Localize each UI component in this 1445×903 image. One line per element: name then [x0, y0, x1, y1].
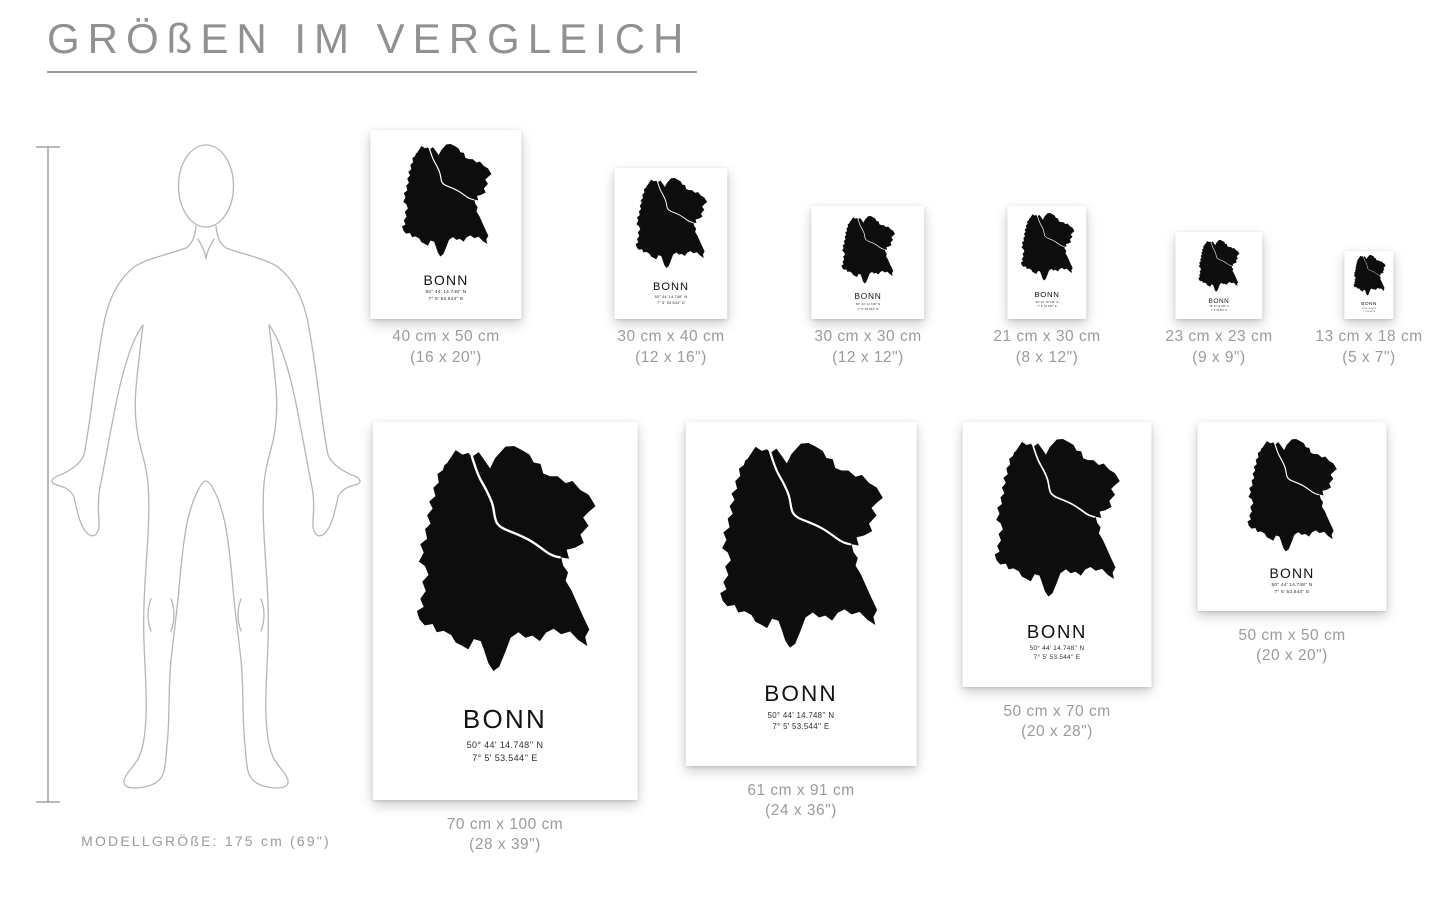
poster-coordinate-east: 7° 5' 53.544'' E [768, 721, 835, 732]
page-title: GRÖßEN IM VERGLEICH [47, 16, 697, 73]
poster-preview: BONN 50° 44' 14.748'' N 7° 5' 53.544'' E [370, 130, 521, 319]
poster-city-title: BONN [1027, 622, 1087, 641]
size-label: 50 cm x 50 cm (20 x 20") [1238, 626, 1345, 667]
poster-preview: BONN 50° 44' 14.748'' N 7° 5' 53.544'' E [811, 206, 924, 319]
poster-city-title: BONN [1034, 291, 1059, 299]
poster-coordinate-north: 50° 44' 14.748'' N [1030, 644, 1085, 653]
poster-coordinate-east: 7° 5' 53.544'' E [655, 301, 688, 307]
size-label-cm: 50 cm x 70 cm [1003, 702, 1110, 722]
size-label-inches: (5 x 7") [1315, 348, 1422, 368]
size-label-cm: 21 cm x 30 cm [993, 327, 1100, 347]
poster-coordinates: 50° 44' 14.748'' N 7° 5' 53.544'' E [1362, 308, 1376, 313]
poster-map-area [381, 144, 511, 257]
size-label: 61 cm x 91 cm (24 x 36") [747, 781, 854, 822]
poster-caption: BONN 50° 44' 14.748'' N 7° 5' 53.544'' E [373, 673, 638, 800]
poster-caption: BONN 50° 44' 14.748'' N 7° 5' 53.544'' E [811, 284, 924, 319]
size-label: 50 cm x 70 cm (20 x 28") [1003, 702, 1110, 743]
poster-preview: BONN 50° 44' 14.748'' N 7° 5' 53.544'' E [1007, 206, 1086, 319]
bonn-map-silhouette-icon [391, 446, 619, 673]
bonn-map-silhouette-icon [381, 144, 511, 257]
size-label-cm: 13 cm x 18 cm [1315, 327, 1422, 347]
size-label: 40 cm x 50 cm (16 x 20") [392, 327, 499, 368]
size-label: 70 cm x 100 cm (28 x 39") [447, 815, 563, 856]
bonn-map-silhouette-icon [1182, 240, 1257, 292]
poster-caption: BONN 50° 44' 14.748'' N 7° 5' 53.544'' E [1198, 552, 1387, 611]
size-label-cm: 23 cm x 23 cm [1165, 327, 1272, 347]
poster-coordinates: 50° 44' 14.748'' N 7° 5' 53.544'' E [655, 295, 688, 306]
size-label-cm: 30 cm x 40 cm [617, 327, 724, 347]
poster-map-area [819, 216, 917, 284]
height-measure-line [37, 147, 59, 802]
poster-caption: BONN 50° 44' 14.748'' N 7° 5' 53.544'' E [614, 269, 727, 319]
poster-caption: BONN 50° 44' 14.748'' N 7° 5' 53.544'' E [1176, 292, 1263, 319]
size-label-cm: 30 cm x 30 cm [814, 327, 921, 347]
size-label-inches: (16 x 20") [392, 348, 499, 368]
poster-coordinate-north: 50° 44' 14.748'' N [467, 739, 544, 752]
figure-knee-marks [148, 599, 264, 631]
size-comparison-infographic: GRÖßEN IM VERGLEICH MODELLGRÖßE: 175 cm … [0, 0, 1445, 903]
bonn-map-silhouette-icon [702, 443, 900, 649]
bonn-map-silhouette-icon [976, 439, 1139, 598]
poster-coordinates: 50° 44' 14.748'' N 7° 5' 53.544'' E [426, 290, 467, 304]
poster-size-option: BONN 50° 44' 14.748'' N 7° 5' 53.544'' E… [614, 168, 727, 368]
poster-size-option: BONN 50° 44' 14.748'' N 7° 5' 53.544'' E… [963, 422, 1152, 743]
poster-coordinate-east: 7° 5' 53.544'' E [1036, 305, 1059, 309]
poster-map-area [1182, 240, 1257, 292]
poster-map-area [1348, 255, 1390, 296]
poster-coordinate-east: 7° 5' 53.544'' E [1030, 653, 1085, 662]
poster-size-option: BONN 50° 44' 14.748'' N 7° 5' 53.544'' E… [373, 422, 638, 856]
bonn-map-silhouette-icon [1013, 213, 1081, 281]
poster-coordinate-east: 7° 5' 53.544'' E [1210, 310, 1229, 313]
size-label-inches: (12 x 16") [617, 348, 724, 368]
poster-city-title: BONN [1361, 302, 1377, 307]
poster-coordinates: 50° 44' 14.748'' N 7° 5' 53.544'' E [1036, 301, 1059, 309]
poster-size-option: BONN 50° 44' 14.748'' N 7° 5' 53.544'' E… [1315, 251, 1422, 368]
human-figure-outline [52, 145, 360, 788]
poster-city-title: BONN [854, 292, 881, 301]
bonn-map-silhouette-icon [1348, 255, 1390, 296]
size-label-cm: 70 cm x 100 cm [447, 815, 563, 835]
bonn-map-silhouette-icon [622, 178, 720, 269]
poster-map-area [622, 178, 720, 269]
size-label-inches: (12 x 12") [814, 348, 921, 368]
poster-caption: BONN 50° 44' 14.748'' N 7° 5' 53.544'' E [963, 598, 1152, 687]
poster-city-title: BONN [423, 273, 468, 288]
poster-city-title: BONN [463, 707, 547, 734]
size-label-inches: (24 x 36") [747, 801, 854, 821]
size-label-cm: 50 cm x 50 cm [1238, 626, 1345, 646]
size-label: 13 cm x 18 cm (5 x 7") [1315, 327, 1422, 368]
bonn-map-silhouette-icon [819, 216, 917, 284]
poster-coordinate-east: 7° 5' 53.544'' E [1362, 311, 1376, 313]
size-label: 30 cm x 40 cm (12 x 16") [617, 327, 724, 368]
poster-map-area [391, 446, 619, 673]
poster-size-option: BONN 50° 44' 14.748'' N 7° 5' 53.544'' E… [811, 206, 924, 368]
size-label-inches: (20 x 20") [1238, 646, 1345, 666]
model-height-label: MODELLGRÖßE: 175 cm (69") [56, 833, 356, 849]
size-label-inches: (9 x 9") [1165, 348, 1272, 368]
size-label-inches: (8 x 12") [993, 348, 1100, 368]
figure-neck-left [134, 226, 196, 267]
poster-size-option: BONN 50° 44' 14.748'' N 7° 5' 53.544'' E… [1198, 422, 1387, 667]
figure-body-left [52, 267, 206, 788]
figure-sternum-v [198, 239, 214, 259]
poster-coordinates: 50° 44' 14.748'' N 7° 5' 53.544'' E [1030, 644, 1085, 663]
size-label: 30 cm x 30 cm (12 x 12") [814, 327, 921, 368]
poster-coordinates: 50° 44' 14.748'' N 7° 5' 53.544'' E [856, 302, 881, 310]
poster-caption: BONN 50° 44' 14.748'' N 7° 5' 53.544'' E [1344, 296, 1393, 319]
poster-size-option: BONN 50° 44' 14.748'' N 7° 5' 53.544'' E… [686, 422, 917, 822]
poster-size-option: BONN 50° 44' 14.748'' N 7° 5' 53.544'' E… [370, 130, 521, 368]
size-label-cm: 40 cm x 50 cm [392, 327, 499, 347]
poster-map-area [976, 439, 1139, 598]
poster-coordinates: 50° 44' 14.748'' N 7° 5' 53.544'' E [768, 710, 835, 733]
model-figure [30, 136, 390, 808]
poster-preview: BONN 50° 44' 14.748'' N 7° 5' 53.544'' E [373, 422, 638, 800]
poster-map-area [1211, 439, 1374, 552]
poster-map-area [1013, 213, 1081, 281]
poster-coordinate-east: 7° 5' 53.544'' E [426, 297, 467, 304]
poster-preview: BONN 50° 44' 14.748'' N 7° 5' 53.544'' E [1344, 251, 1393, 319]
poster-city-title: BONN [1209, 299, 1230, 306]
poster-coordinates: 50° 44' 14.748'' N 7° 5' 53.544'' E [467, 739, 544, 765]
poster-city-title: BONN [653, 282, 689, 294]
poster-preview: BONN 50° 44' 14.748'' N 7° 5' 53.544'' E [614, 168, 727, 319]
poster-preview: BONN 50° 44' 14.748'' N 7° 5' 53.544'' E [1176, 232, 1263, 319]
poster-preview: BONN 50° 44' 14.748'' N 7° 5' 53.544'' E [963, 422, 1152, 687]
poster-coordinate-east: 7° 5' 53.544'' E [1272, 590, 1313, 597]
poster-city-title: BONN [764, 682, 837, 706]
figure-neck-right [216, 226, 278, 267]
poster-size-option: BONN 50° 44' 14.748'' N 7° 5' 53.544'' E… [1165, 232, 1272, 368]
poster-coordinates: 50° 44' 14.748'' N 7° 5' 53.544'' E [1272, 583, 1313, 597]
poster-city-title: BONN [1269, 566, 1314, 581]
bonn-map-silhouette-icon [1211, 439, 1374, 552]
size-label: 23 cm x 23 cm (9 x 9") [1165, 327, 1272, 368]
poster-preview: BONN 50° 44' 14.748'' N 7° 5' 53.544'' E [686, 422, 917, 766]
figure-body-right [206, 267, 360, 788]
size-label-inches: (20 x 28") [1003, 722, 1110, 742]
poster-caption: BONN 50° 44' 14.748'' N 7° 5' 53.544'' E [686, 649, 917, 766]
poster-map-area [702, 443, 900, 649]
poster-size-option: BONN 50° 44' 14.748'' N 7° 5' 53.544'' E… [993, 206, 1100, 368]
size-label-inches: (28 x 39") [447, 835, 563, 855]
poster-coordinate-north: 50° 44' 14.748'' N [768, 710, 835, 721]
poster-coordinate-north: 50° 44' 14.748'' N [655, 295, 688, 301]
poster-preview: BONN 50° 44' 14.748'' N 7° 5' 53.544'' E [1198, 422, 1387, 611]
size-label: 21 cm x 30 cm (8 x 12") [993, 327, 1100, 368]
poster-caption: BONN 50° 44' 14.748'' N 7° 5' 53.544'' E [1007, 281, 1086, 319]
poster-coordinate-east: 7° 5' 53.544'' E [467, 752, 544, 765]
size-label-cm: 61 cm x 91 cm [747, 781, 854, 801]
poster-coordinate-east: 7° 5' 53.544'' E [856, 307, 881, 311]
figure-head [179, 145, 234, 227]
poster-coordinates: 50° 44' 14.748'' N 7° 5' 53.544'' E [1210, 306, 1229, 312]
poster-caption: BONN 50° 44' 14.748'' N 7° 5' 53.544'' E [370, 257, 521, 319]
